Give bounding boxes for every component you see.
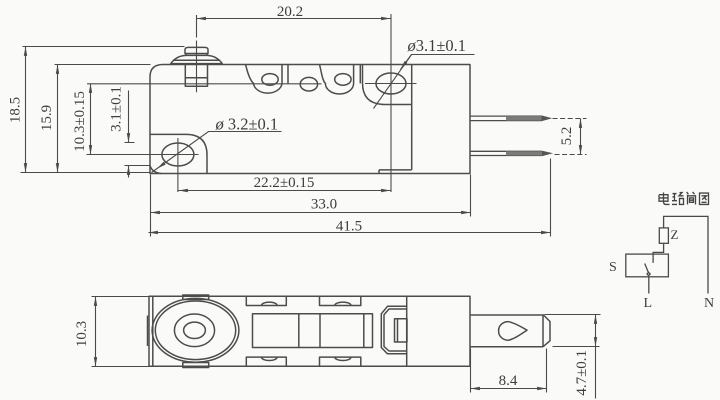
svg-text:41.5: 41.5 (336, 219, 362, 235)
svg-text:S: S (609, 260, 617, 275)
svg-text:ø3.1±0.1: ø3.1±0.1 (407, 36, 467, 55)
svg-text:3.1±0.1: 3.1±0.1 (109, 86, 125, 132)
svg-text:15.9: 15.9 (39, 105, 55, 131)
svg-text:ø 3.2±0.1: ø 3.2±0.1 (215, 115, 279, 134)
svg-text:4.7±0.1: 4.7±0.1 (574, 350, 590, 396)
svg-text:10.3: 10.3 (74, 321, 90, 347)
svg-text:8.4: 8.4 (499, 373, 518, 389)
svg-text:L: L (644, 296, 653, 311)
svg-text:18.5: 18.5 (8, 97, 24, 123)
svg-text:33.0: 33.0 (311, 197, 337, 213)
svg-text:5.2: 5.2 (559, 127, 575, 146)
svg-text:20.2: 20.2 (277, 4, 303, 20)
svg-text:10.3±0.15: 10.3±0.15 (72, 91, 88, 152)
svg-text:22.2±0.15: 22.2±0.15 (254, 175, 315, 191)
svg-text:N: N (704, 296, 714, 311)
svg-text:Z: Z (671, 227, 679, 242)
